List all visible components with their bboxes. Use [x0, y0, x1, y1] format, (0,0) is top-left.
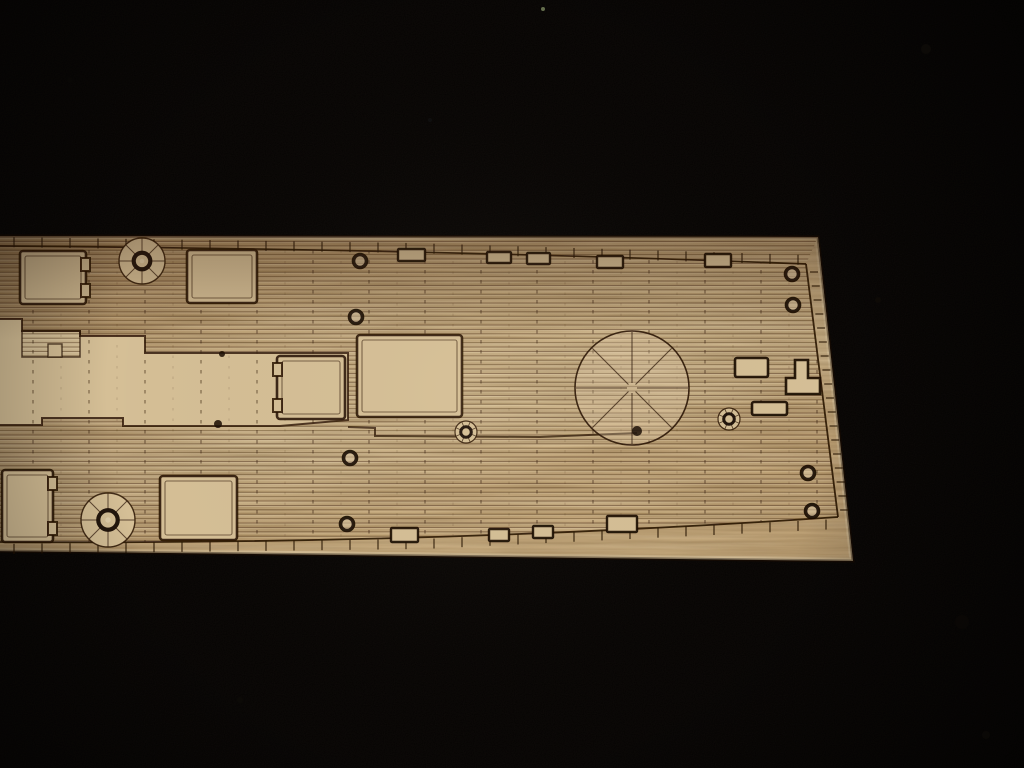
photo-wooden-model-deck-sheet — [0, 0, 1024, 768]
photo-lighting-vignette — [0, 0, 1024, 768]
vignette — [0, 0, 1024, 768]
photo-frame — [0, 0, 1024, 768]
